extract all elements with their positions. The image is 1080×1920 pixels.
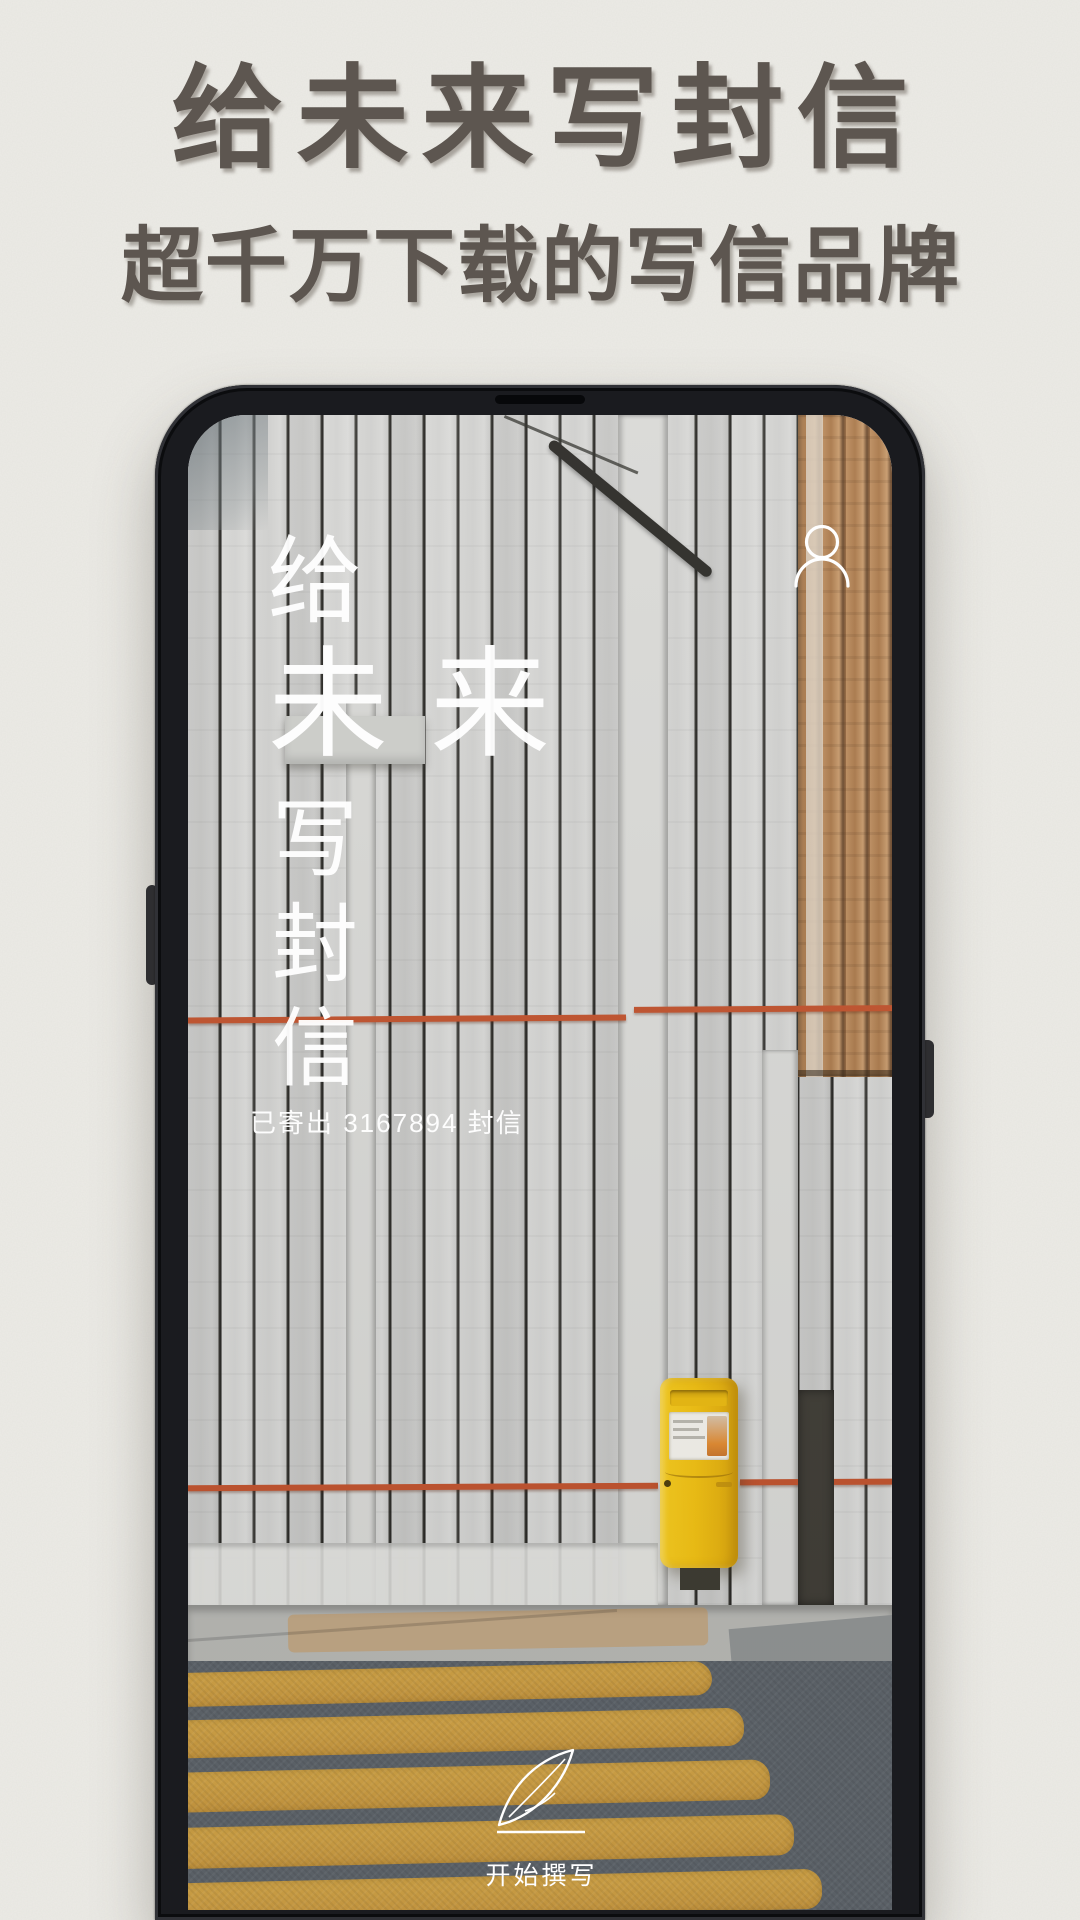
speaker-grille [495,395,585,404]
label-photo [707,1416,727,1456]
crosswalk-stripe [188,1661,712,1707]
page-title: 给未来写封信 [0,58,1080,183]
brand-char-xin: 信 [265,1006,365,1092]
mailbox-slot [670,1390,728,1406]
poster-canvas: 给未来写封信 超千万下载的写信品牌 [0,0,1080,1920]
start-writing-label: 开始撰写 [188,1856,892,1892]
pale-wood-plank [806,415,823,1077]
label-text-line [673,1420,703,1423]
brand-char-xie: 写 [265,797,365,883]
quill-feather-icon [485,1745,595,1837]
mailbox-stand [680,1568,720,1590]
mailbox-seam [665,1466,733,1478]
brand-char-feng: 封 [265,902,365,988]
wood-seam [798,1070,892,1076]
dark-gate-gap [798,1390,834,1605]
yellow-mailbox [660,1378,738,1568]
app-screen: 给 未来 写 封 信 已寄出 3167894 封信 开始撰写 [188,415,892,1910]
page-subtitle: 超千万下载的写信品牌 [0,222,1080,312]
phone-mockup: 给 未来 写 封 信 已寄出 3167894 封信 开始撰写 [155,385,925,1920]
sidewalk [188,1605,892,1661]
brand-char-gei: 给 [265,535,365,630]
mailbox-logo [716,1482,732,1487]
fence-post-right [762,1050,798,1605]
fence-bottom-rail [188,1543,658,1605]
letters-sent-counter: 已寄出 3167894 封信 [250,1103,524,1140]
mailbox-keyhole [664,1480,671,1487]
person-icon[interactable] [793,521,851,589]
label-text-line [673,1436,705,1439]
mailbox-label-window [669,1412,729,1460]
start-writing-button[interactable]: 开始撰写 [188,1745,892,1892]
brand-chars-weilai: 未来 [268,645,592,765]
fence-dark-patch [188,415,268,530]
label-text-line [673,1428,699,1431]
